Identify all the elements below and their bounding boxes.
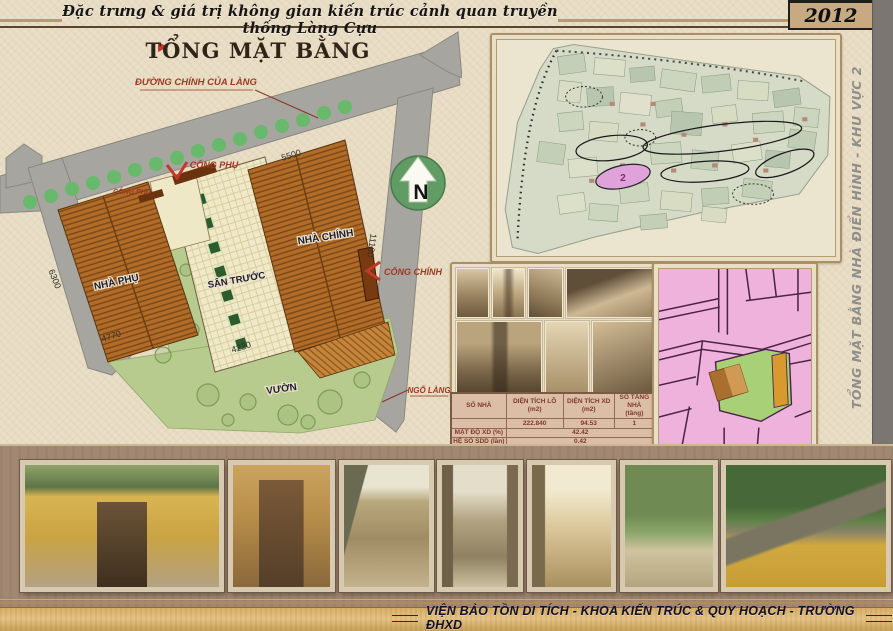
zone-label: 2 [620,173,626,184]
cell-so-nha [451,419,506,428]
sidebar-vertical-title: TỔNG MẶT BẰNG NHÀ ĐIỂN HÌNH - KHU VỰC 2 [840,34,872,442]
collage-photo-1 [456,268,489,318]
road-label: ĐƯỜNG CHÍNH CỦA LÀNG [135,76,258,88]
collage-photo-6 [545,321,589,394]
collage-photo-2 [492,268,525,318]
bottom-photo-2 [228,460,335,592]
poster-board: Đặc trưng & giá trị không gian kiến trúc… [0,0,893,631]
footer-rule-1 [0,599,893,600]
village-map-panel: 2 [490,33,842,263]
cell-so-tang: 1 [614,419,655,428]
collage-photo-4 [566,268,654,318]
collage-photo-7 [592,321,654,394]
cadastral-map [659,269,811,453]
north-letter: N [413,181,428,204]
year-badge: 2012 [788,0,874,30]
col-header: SỐ TẦNG NHÀ(tầng) [614,393,655,419]
bottom-photo-3 [339,460,434,592]
bottom-photo-4 [437,460,523,592]
photo-collage-panel [450,262,660,400]
header-rule-left [0,19,62,22]
footer-deco-left [392,615,418,622]
plan-title: TỔNG MẶT BẰNG [145,34,370,63]
main-gate-label: CỔNG CHÍNH [384,266,442,277]
bottom-photo-5 [527,460,616,592]
dim-11160: 11160 [365,233,378,258]
alley-label: NGÕ LÀNG [407,386,450,395]
cell-dt-lo: 222.840 [506,419,563,428]
photo-strip [0,444,893,607]
side-gate-top-label: CỔNG PHỤ [190,159,239,170]
stats-table-wrap: SỐ NHÀ DIỆN TÍCH LÔ(m2) DIỆN TÍCH XD(m2)… [450,392,656,448]
bottom-photo-7 [721,460,891,592]
collage-photo-5 [456,321,542,394]
site-plan: N TỔNG MẶT BẰNG ĐƯỜNG CHÍNH CỦA LÀNG CỔN… [0,30,462,445]
village-map: 2 [497,40,835,256]
footer-deco-right [866,615,892,622]
right-edge-strip [872,0,893,444]
bottom-photo-1 [20,460,224,592]
stats-table: SỐ NHÀ DIỆN TÍCH LÔ(m2) DIỆN TÍCH XD(m2)… [450,392,656,448]
footer-text: VIỆN BẢO TỒN DI TÍCH - KHOA KIẾN TRÚC & … [426,604,858,631]
col-header: DIỆN TÍCH LÔ(m2) [506,393,563,419]
orange-parcel [772,353,788,408]
col-header: DIỆN TÍCH XD(m2) [563,393,614,419]
cadastral-map-panel [652,262,818,460]
cell-mat-do: 42.42 [506,428,655,437]
cell-dt-xd: 94.53 [563,419,614,428]
row-header: MẬT ĐỘ XD (%) [451,428,506,437]
collage-photo-3 [528,268,563,318]
footer-text-wrap: VIỆN BẢO TỒN DI TÍCH - KHOA KIẾN TRÚC & … [392,606,892,630]
north-arrow-icon: N [391,156,445,210]
bottom-photo-6 [620,460,718,592]
col-header: SỐ NHÀ [451,393,506,419]
side-gate-left-label: CỔNG PHỤ [113,187,152,196]
